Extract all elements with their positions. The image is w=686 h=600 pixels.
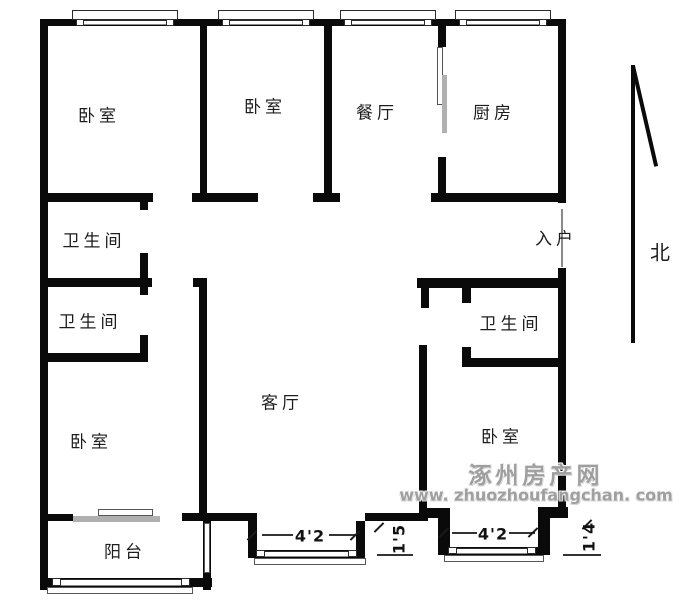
- wall-bed1-bottom-wall: [42, 193, 153, 202]
- window-kitchen-sill: [455, 10, 551, 20]
- balcony-window-sill: [47, 587, 193, 594]
- wall-bed3-balcony-wall: [40, 514, 73, 521]
- window-kitchen-frame-left: [459, 19, 467, 26]
- wall-living-left-wall: [199, 278, 207, 513]
- room-label-bedroom-top-middle: 卧室: [244, 93, 286, 118]
- bay2-window-sill: [444, 555, 544, 562]
- balcony-window-frame-left: [52, 578, 61, 586]
- bay2-window-frame-left: [448, 547, 457, 554]
- wall-right-outer-wall-upper: [558, 19, 566, 203]
- wall-bed2-bottom-wall: [192, 193, 258, 202]
- balcony-right-window: [204, 523, 210, 573]
- window-bedroom-top-left-glass: [77, 20, 173, 25]
- wall-balcony-top-wall-right: [182, 513, 257, 521]
- room-label-entry: 入户: [535, 225, 577, 250]
- bay1-window-glass: [258, 551, 355, 557]
- wall-bath3-left-wall-upper: [462, 288, 471, 303]
- wall-dining-kitchen-divider-lower: [438, 157, 446, 193]
- room-label-dining-room: 餐厅: [356, 99, 398, 124]
- wall-kitchen-bottom-wall: [431, 193, 566, 202]
- room-label-living-room: 客厅: [261, 389, 303, 414]
- dimension-bay-left: 4'2: [295, 527, 325, 546]
- kitchen-sliding-door-panel-b: [442, 75, 447, 133]
- room-label-kitchen: 厨房: [473, 99, 515, 124]
- window-bedroom-top-left-frame-left: [76, 19, 84, 26]
- window-bedroom-top-middle-frame-left: [222, 19, 230, 26]
- window-dining-glass: [345, 20, 431, 25]
- balcony-window-frame-right: [181, 578, 190, 586]
- balcony-sliding-door-panel-a: [98, 509, 153, 516]
- wall-bath3-bottom-wall: [462, 358, 558, 367]
- wall-bed4-left-stub: [421, 288, 429, 308]
- room-label-bedroom-top-left: 卧室: [78, 102, 120, 127]
- wall-bath1-bottom-wall: [42, 278, 152, 287]
- north-arrow-shaft: [631, 65, 635, 343]
- wall-bed1-door-stub: [140, 202, 148, 210]
- window-dining-frame-left: [344, 19, 352, 26]
- window-bedroom-top-left-sill: [72, 10, 178, 20]
- bay1-window-frame-right: [348, 550, 357, 557]
- dimension-gap-right: 1'4: [580, 522, 599, 552]
- wall-bath2-bottom-wall: [42, 353, 148, 362]
- window-bedroom-top-middle-glass: [223, 20, 309, 25]
- wall-bed4-south-nub-right: [538, 507, 568, 518]
- bay1-window-sill: [254, 558, 366, 565]
- dimension-gap-middle: 1'5: [390, 524, 409, 554]
- wall-bed4-south-nub-left: [419, 508, 450, 518]
- watermark-site-url: www. zhuozhoufangchan. com: [399, 486, 673, 505]
- window-dining-frame-right: [424, 19, 432, 26]
- bay2-window-glass: [450, 548, 536, 554]
- wall-bath2-door-stub: [140, 335, 148, 362]
- window-kitchen-glass: [460, 20, 546, 25]
- north-label: 北: [650, 237, 670, 266]
- window-bedroom-top-left-frame-right: [166, 19, 174, 26]
- window-bedroom-top-middle-sill: [218, 10, 314, 20]
- balcony-sliding-door-panel-b: [73, 516, 160, 522]
- room-label-bathroom-upper-left: 卫生间: [63, 227, 126, 252]
- wall-bed1-bed2-divider-wall: [200, 24, 207, 194]
- wall-bath3-left-wall-lower: [462, 347, 471, 358]
- room-label-bathroom-right: 卫生间: [480, 310, 543, 335]
- room-label-bedroom-bottom-right: 卧室: [481, 423, 523, 448]
- dimension-leader-4: [377, 554, 413, 556]
- wall-dining-kitchen-divider-upper: [438, 24, 446, 47]
- window-bedroom-top-middle-frame-right: [302, 19, 310, 26]
- window-kitchen-frame-right: [539, 19, 547, 26]
- room-label-bedroom-bottom-left: 卧室: [70, 428, 112, 453]
- bay1-window-frame-left: [256, 550, 265, 557]
- balcony-window-glass: [52, 579, 190, 586]
- dimension-leader-5: [563, 554, 601, 556]
- north-arrow-head: [631, 66, 658, 167]
- dimension-tick-4: [374, 522, 385, 533]
- room-label-bathroom-middle-left: 卫生间: [59, 308, 122, 333]
- dimension-bay-right: 4'2: [478, 525, 508, 544]
- bay2-window-frame-right: [527, 547, 536, 554]
- floor-plan: 卧室 卧室 餐厅 厨房 卫生间 卫生间 卫生间 入户 客厅 卧室 卧室 阳台 北…: [0, 0, 686, 600]
- wall-bed2-dining-divider-wall: [324, 24, 332, 193]
- window-dining-sill: [340, 10, 436, 20]
- room-label-balcony: 阳台: [104, 538, 146, 563]
- wall-bath1-door-stub: [140, 253, 148, 295]
- wall-bed2-dining-divider-foot: [313, 193, 340, 202]
- dimension-leader-2: [452, 532, 477, 534]
- dimension-leader-0: [262, 534, 293, 536]
- wall-bath3-top-wall: [417, 278, 560, 288]
- wall-left-outer-wall: [40, 19, 48, 590]
